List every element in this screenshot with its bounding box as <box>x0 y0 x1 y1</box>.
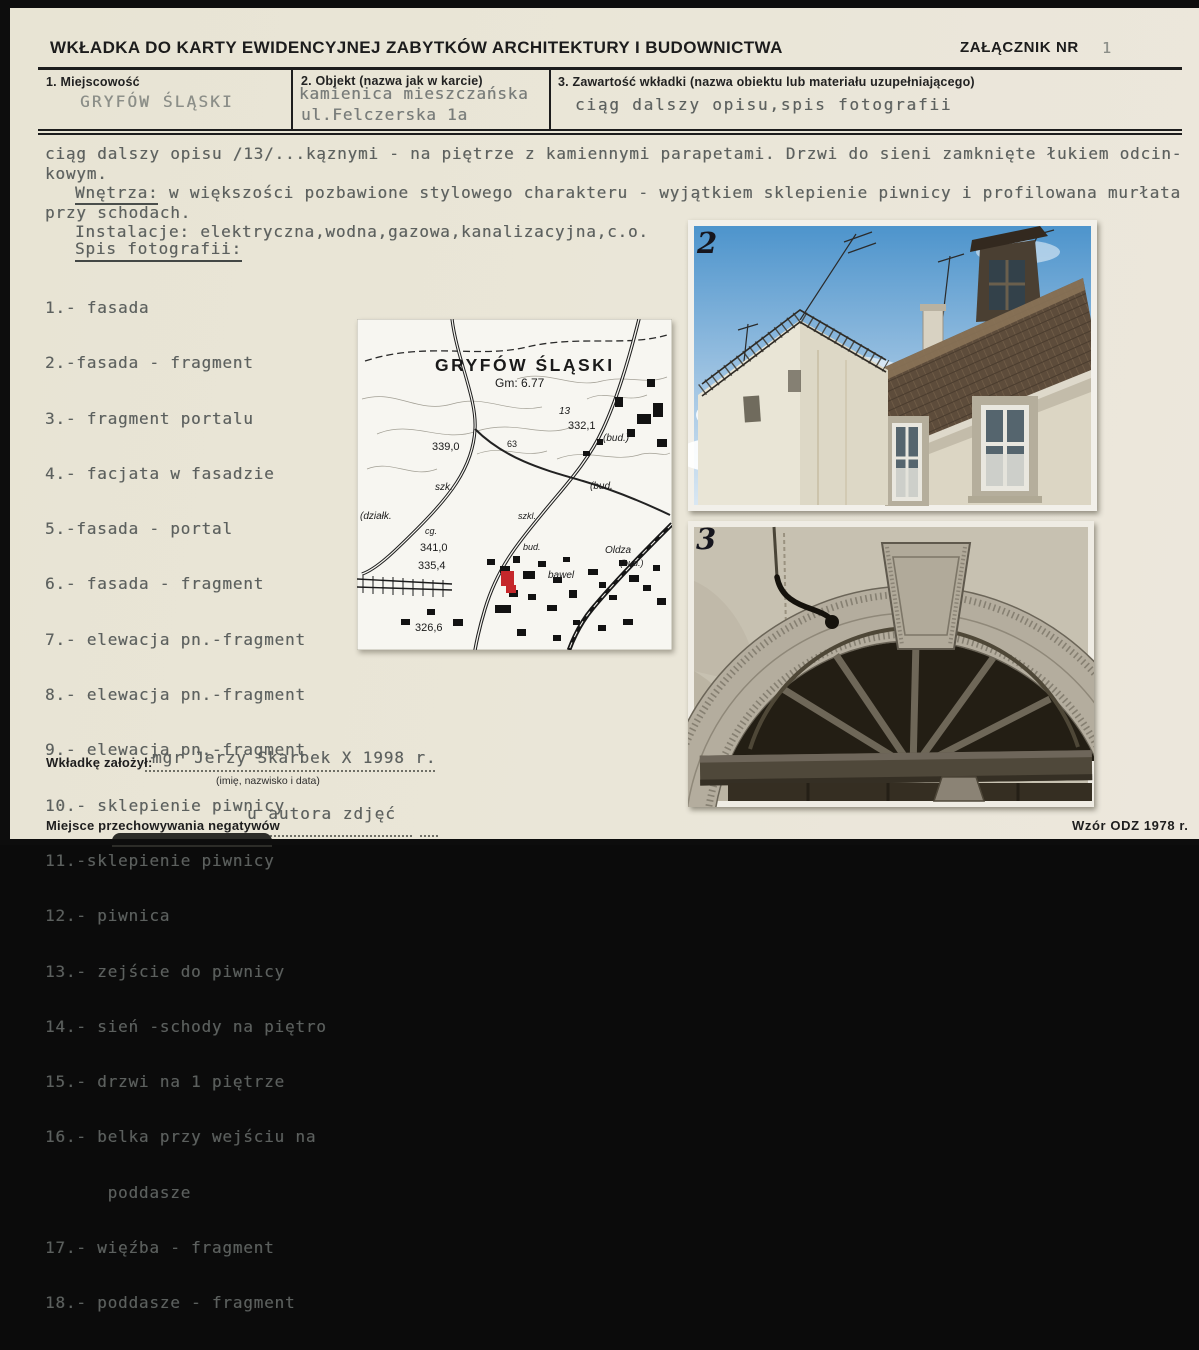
list-item: 5.-fasada - portal <box>45 520 327 537</box>
map-label: szkl. <box>518 511 536 521</box>
list-item: 13.- zejście do piwnicy <box>45 963 327 980</box>
field-contents-label: 3. Zawartość wkładki (nazwa obiektu lub … <box>558 75 975 89</box>
description-line: Wnętrza: w większości pozbawione stylowe… <box>45 183 1197 203</box>
photo-3: 3 <box>688 521 1094 807</box>
map-label: 63 <box>507 439 517 449</box>
divider <box>549 70 551 129</box>
photo-2: 2 <box>688 220 1097 511</box>
form-version: Wzór ODZ 1978 r. <box>1072 818 1189 833</box>
record-card: WKŁADKA DO KARTY EWIDENCYJNEJ ZABYTKÓW A… <box>10 8 1199 839</box>
window-icon <box>968 396 1042 503</box>
map-label: 341,0 <box>420 542 448 554</box>
wnetrza-label: Wnętrza: <box>75 183 158 205</box>
scan-edge <box>0 0 10 845</box>
scan-edge <box>0 839 1199 845</box>
map-label: 339,0 <box>432 441 460 453</box>
list-item: 11.-sklepienie piwnicy <box>45 852 327 869</box>
map-label: 335,4 <box>418 560 446 572</box>
map-label: (działk. <box>360 511 392 522</box>
list-item: 8.- elewacja pn.-fragment <box>45 686 327 703</box>
photo-2-image <box>688 220 1097 511</box>
field-place-label: 1. Miejscowość <box>46 75 140 89</box>
list-item: 18.- poddasze - fragment <box>45 1294 327 1311</box>
scan-edge <box>0 0 1199 8</box>
map-label: (bud.) <box>603 433 629 444</box>
list-item: 14.- sień -schody na piętro <box>45 1018 327 1035</box>
map-label: (bud.) <box>620 558 644 568</box>
divider <box>291 70 293 129</box>
description-line: kowym. <box>45 164 1197 184</box>
list-item: 17.- więźba - fragment <box>45 1239 327 1256</box>
list-item: 15.- drzwi na 1 piętrze <box>45 1073 327 1090</box>
map-label: 13 <box>559 406 571 417</box>
negatives-label: Miejsce przechowywania negatywów <box>46 818 280 833</box>
photo-2-number: 2 <box>697 229 717 258</box>
map-image: GRYFÓW ŚLĄSKI Gm: 6.77 13 332,1 (bud.) 3… <box>357 319 672 650</box>
map-subtitle: Gm: 6.77 <box>495 376 545 390</box>
field-contents-value: ciąg dalszy opisu,spis fotografii <box>575 95 952 114</box>
map-label: bawel <box>548 570 575 581</box>
founder-label: Wkładkę założył: <box>46 755 153 770</box>
map-label: bud. <box>523 542 541 552</box>
attachment-label: ZAŁĄCZNIK NR <box>960 39 1079 56</box>
map-label: Oldza <box>605 545 632 556</box>
attachment-number: 1 <box>1102 39 1112 57</box>
list-item: 16.- belka przy wejściu na <box>45 1128 327 1145</box>
divider <box>38 133 1182 135</box>
wnetrza-text: w większości pozbawione stylowego charak… <box>158 183 1180 202</box>
field-object-value-line2: ul.Felczerska 1a <box>301 105 468 124</box>
list-item: 4.- facjata w fasadzie <box>45 465 327 482</box>
photo-3-image <box>688 521 1094 807</box>
field-object-value-line1: kamienica mieszczańska <box>299 84 529 103</box>
list-item: poddasze <box>45 1184 327 1201</box>
map-label: 326,6 <box>415 622 443 634</box>
photo-3-number: 3 <box>696 525 716 554</box>
divider <box>38 129 1182 131</box>
map-title: GRYFÓW ŚLĄSKI <box>435 354 615 375</box>
photo-list-heading: Spis fotografii: <box>75 239 242 262</box>
map-print: GRYFÓW ŚLĄSKI Gm: 6.77 13 332,1 (bud.) 3… <box>357 319 672 650</box>
map-label: (bud. <box>590 481 613 492</box>
list-item: 3.- fragment portalu <box>45 410 327 427</box>
window-icon <box>885 416 929 506</box>
page-title: WKŁADKA DO KARTY EWIDENCYJNEJ ZABYTKÓW A… <box>50 38 783 58</box>
map-label: 332,1 <box>568 420 596 432</box>
list-item: 6.- fasada - fragment <box>45 575 327 592</box>
negatives-line <box>250 834 412 837</box>
list-item: 7.- elewacja pn.-fragment <box>45 631 327 648</box>
list-item: 1.- fasada <box>45 299 327 316</box>
negatives-line <box>420 834 438 837</box>
founder-hint: (imię, nazwisko i data) <box>216 775 320 787</box>
description-line: ciąg dalszy opisu /13/...kąznymi - na pi… <box>45 144 1197 164</box>
map-label: szk. <box>435 482 453 493</box>
list-item: 12.- piwnica <box>45 907 327 924</box>
map-label: cg. <box>425 526 437 536</box>
field-place-value: GRYFÓW ŚLĄSKI <box>80 92 234 111</box>
list-item: 2.-fasada - fragment <box>45 354 327 371</box>
divider <box>38 67 1182 70</box>
founder-line <box>145 769 435 772</box>
founder-value: mgr Jerzy Skarbek X 1998 r. <box>152 748 436 767</box>
